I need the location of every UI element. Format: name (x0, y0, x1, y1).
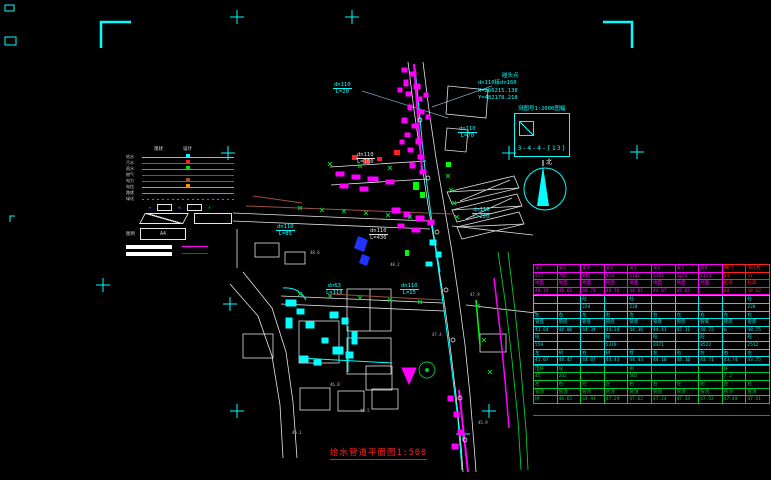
table-cell: 右 (652, 380, 676, 388)
table-cell (628, 341, 652, 349)
legend: 现状 设计 给水污水雨水燃气电力电信路缘绿化 ◄ ◆ ✕ 图例 A4 (126, 146, 244, 256)
table-cell: 43.75 (746, 356, 770, 364)
pipe-label: dn63L=118 (326, 283, 343, 297)
table-cell: 48.72 (699, 326, 723, 334)
pipe-label: dn110L=430 (369, 228, 388, 242)
table-cell: 左 (534, 380, 558, 388)
table-cell: 砼 (676, 380, 700, 388)
table-cell: 1252 (676, 272, 700, 280)
table-cell: 右 (746, 311, 770, 319)
table-cell: 47.62 (628, 395, 652, 403)
table-cell: 3371 (652, 341, 676, 349)
pipe-label: dn110L=85 (276, 224, 295, 238)
table-cell: 1193 (652, 272, 676, 280)
table-cell: 44.07 (581, 356, 605, 364)
table-cell: 47.51 (746, 395, 770, 403)
table-cell: 47.24 (652, 395, 676, 403)
table-section-head: 支1支2支3支4支5支6支7支8阀门消火栓9777658429191107119… (533, 264, 770, 295)
pipe-label: dn110L=70 (458, 126, 477, 140)
pipe-label: dn110L=15 (400, 283, 419, 297)
annotation-y: Y=482178.218 (478, 95, 519, 102)
table-cell: 电杆 (534, 365, 558, 373)
table-cell: 1107 (628, 272, 652, 280)
table-cell: 地面 (652, 279, 676, 287)
north-label: 北 (546, 158, 552, 166)
legend-footer-box: A4 (140, 228, 186, 240)
table-cell: 2512 (746, 341, 770, 349)
edge-mark-1 (5, 5, 14, 11)
legend-marker-icon (186, 178, 190, 182)
table-cell: 68 (723, 287, 747, 295)
table-cell (746, 365, 770, 373)
table-cell: 48.74 (534, 287, 558, 295)
table-cell: 44.94 (581, 395, 605, 403)
legend-marker-icon (186, 160, 190, 164)
table-cell: 224 (581, 303, 605, 311)
table-cell: 51 (746, 272, 770, 280)
mapsheet-number: 3-4-4-[13] (515, 144, 569, 152)
table-cell: 765 (558, 272, 582, 280)
mapsheet-caption: 测图号1:2000图幅 (518, 104, 570, 112)
utility-lines-brown (246, 196, 452, 300)
table-cell: 48.65 (558, 395, 582, 403)
table-cell: 220 (746, 303, 770, 311)
pipe-size-label: dn110 (333, 82, 352, 89)
table-cell: 砼 (699, 333, 723, 341)
table-cell: 砼 (558, 365, 582, 373)
table-cell: 左 (581, 311, 605, 319)
pipe-label: dn110L=20 (333, 82, 352, 96)
mapsheet-box: 3-4-4-[13] (514, 113, 570, 157)
table-cell: 48.63 (558, 287, 582, 295)
spot-elevation: 45.9 (478, 420, 488, 425)
legend-row-label: 绿化 (126, 196, 142, 202)
table-cell: 47.52 (699, 395, 723, 403)
pipe-length-label: L=15 (400, 290, 419, 296)
pipe-length-label: L=220 (472, 214, 491, 220)
table-cell (723, 295, 747, 303)
table-cell: 地面 (558, 279, 582, 287)
edge-mark-2 (5, 37, 16, 45)
table-cell: 8522 (699, 341, 723, 349)
table-cell: 44.34 (605, 326, 629, 334)
spot-elevation: 48.2 (390, 262, 400, 267)
pipe-size-label: dn110 (400, 283, 419, 290)
corner-bracket-tl (101, 22, 131, 48)
table-cell: 地面 (581, 279, 605, 287)
table-cell: 919 (605, 272, 629, 280)
cross-icon: ✕ (208, 205, 211, 211)
pipe-length-label: L=430 (369, 235, 388, 241)
table-cell: 左 (723, 380, 747, 388)
table-cell (581, 372, 605, 380)
table-cell: 砼 (652, 333, 676, 341)
table-bottom-rule (533, 415, 770, 416)
table-cell (676, 333, 700, 341)
magenta-triangle (402, 368, 416, 384)
table-cell: 管底 (605, 318, 629, 326)
north-arrow: 北 (524, 158, 566, 210)
table-cell (581, 333, 605, 341)
pipe-length-label: L=70 (458, 133, 477, 139)
table-cell: 管顶 (605, 388, 629, 396)
table-cell: 管顶 (746, 388, 770, 396)
table-cell: 44.34 (581, 326, 605, 334)
table-cell (699, 372, 723, 380)
table-cell: 管底 (652, 318, 676, 326)
table-cell: 地面 (699, 279, 723, 287)
table-cell: 44.36 (628, 326, 652, 334)
table-cell (699, 303, 723, 311)
mapsheet: 测图号1:2000图幅 3-4-4-[13] (514, 104, 570, 157)
table-cell: m (723, 326, 747, 334)
table-cell: 管底 (699, 318, 723, 326)
table-cell: 地面 (605, 279, 629, 287)
table-cell (676, 372, 700, 380)
spot-elevation: 46.1 (292, 430, 302, 435)
legend-line-sample (142, 199, 234, 200)
table-cell: 左 (746, 349, 770, 357)
table-cell: 砼 (581, 380, 605, 388)
magenta-line-sample (182, 246, 208, 247)
table-cell: 管顶 (652, 388, 676, 396)
table-cell (699, 365, 723, 373)
table-cell: 桩号 (723, 279, 747, 287)
table-cell: 41.64 (534, 326, 558, 334)
table-cell: 支3 (581, 264, 605, 272)
table-cell (628, 333, 652, 341)
table-cell: 48.62 (746, 287, 770, 295)
pipe-size-label: dn110 (369, 228, 388, 235)
legend-symbols-row: ◄ ◆ ✕ (148, 204, 244, 211)
pipe-length-label: L=20 (333, 89, 352, 95)
blue-blocks (354, 236, 370, 266)
table-cell: 左 (699, 349, 723, 357)
table-cell (652, 295, 676, 303)
table-cell: 支7 (676, 264, 700, 272)
pipe-size-label: dn110 (472, 207, 491, 214)
table-cell: 43.74 (723, 356, 747, 364)
table-cell: 地面 (628, 279, 652, 287)
pipe-length-label: L=85 (276, 231, 295, 237)
table-cell: 44.87 (652, 287, 676, 295)
table-cell (723, 333, 747, 341)
table-cell: 左 (676, 311, 700, 319)
table-cell: 左 (628, 311, 652, 319)
table-cell: 消火栓 (746, 264, 770, 272)
table-cell: 左 (605, 380, 629, 388)
table-cell: 管顶 (558, 388, 582, 396)
arrow-icon: ◄ (148, 205, 151, 211)
table-cell (581, 341, 605, 349)
table-cell: 管顶 (676, 388, 700, 396)
legend-line-sample (142, 193, 234, 194)
legend-header-existing: 现状 (154, 146, 163, 152)
table-cell: 502 (628, 372, 652, 380)
legend-footer: 图例 A4 (126, 228, 244, 240)
table-cell: 砼 (605, 333, 629, 341)
table-cell: 41.07 (534, 356, 558, 364)
legend-row: 绿化 (126, 196, 244, 202)
table-cell: 842 (581, 272, 605, 280)
table-cell: 228 (628, 303, 652, 311)
table-cell: 树 (558, 349, 582, 357)
table-cell: 44.41 (652, 326, 676, 334)
table-cell (558, 303, 582, 311)
table-cell: 砼 (628, 295, 652, 303)
table-cell (676, 341, 700, 349)
table-cell: 地面 (534, 279, 558, 287)
table-cell: 管顶 (581, 388, 605, 396)
table-cell: 管顶 (628, 388, 652, 396)
pipe-length-label: L=118 (326, 290, 343, 296)
table-cell: 管底 (676, 318, 700, 326)
table-cell: 右 (746, 380, 770, 388)
table-cell (652, 365, 676, 373)
scale-bar (126, 245, 172, 249)
table-section-foot: 电杆砼树杆452025027.2左右砼左右右砼树左右管顶管顶管顶管顶管顶管顶管顶… (533, 365, 770, 404)
drawing-title: 给水管道平面图1:500 (330, 446, 427, 460)
table-cell: 砼 (581, 295, 605, 303)
legend-header-design: 设计 (183, 146, 192, 152)
table-cell: 支1 (534, 264, 558, 272)
spot-elevation: 48.6 (310, 250, 320, 255)
table-cell: 48.75 (746, 326, 770, 334)
pipe-size-label: dn63 (326, 283, 343, 290)
legend-footer-label: 图例 (126, 231, 135, 237)
table-cell (581, 365, 605, 373)
table-cell: 47.34 (676, 395, 700, 403)
table-cell: 右 (628, 380, 652, 388)
table-cell: 支6 (652, 264, 676, 272)
table-cell: 管顶 (723, 388, 747, 396)
table-cell: 44.10 (676, 356, 700, 364)
table-cell: 右 (723, 349, 747, 357)
table-cell: 右 (652, 311, 676, 319)
table-cell: 树 (534, 395, 558, 403)
table-cell (676, 295, 700, 303)
table-cell: 1314 (699, 272, 723, 280)
table-cell: 管底 (723, 318, 747, 326)
table-cell: 48.81 (628, 287, 652, 295)
table-cell: 支2 (558, 264, 582, 272)
table-cell (746, 372, 770, 380)
table-cell: 阀门 (723, 264, 747, 272)
spot-elevation: 46.5 (360, 408, 370, 413)
table-cell: 管底 (558, 318, 582, 326)
table-cell (652, 303, 676, 311)
table-cell: 管底 (746, 318, 770, 326)
table-cell: 支4 (605, 264, 629, 272)
table-cell: 44.47 (558, 356, 582, 364)
table-cell: 559 (534, 341, 558, 349)
table-cell: 44.43 (605, 356, 629, 364)
spot-elevation: 47.9 (470, 292, 480, 297)
table-cell (605, 372, 629, 380)
table-cell (605, 365, 629, 373)
table-cell: 48.73 (581, 287, 605, 295)
table-cell: 杆 (723, 365, 747, 373)
annotation-x: X=266215.138 (478, 88, 519, 95)
pipe-length-label: L=160 (356, 159, 375, 165)
table-cell: 48.76 (605, 287, 629, 295)
table-cell (723, 341, 747, 349)
blue-line-sample (182, 253, 208, 254)
table-cell (605, 295, 629, 303)
table-cell: 管顶 (534, 388, 558, 396)
scale-bar (126, 252, 172, 256)
table-cell (558, 341, 582, 349)
table-cell: 43.71 (699, 356, 723, 364)
table-cell: 43.64 (676, 287, 700, 295)
table-cell: 右 (699, 311, 723, 319)
legend-marker-icon (186, 154, 190, 158)
legend-rows: 给水污水雨水燃气电力电信路缘绿化 (126, 154, 244, 202)
legend-shape-row (142, 213, 244, 224)
table-cell (534, 303, 558, 311)
table-cell: 树 (699, 380, 723, 388)
table-cell: 右 (558, 311, 582, 319)
table-cell: 砼 (746, 295, 770, 303)
table-cell: 202 (558, 372, 582, 380)
table-cell (558, 295, 582, 303)
table-cell: 5319 (605, 341, 629, 349)
table-cell: 47.11 (676, 326, 700, 334)
edge-mark-3 (10, 216, 15, 222)
table-cell: 右 (581, 349, 605, 357)
table-cell: 45 (534, 372, 558, 380)
table-cell: 47.49 (723, 395, 747, 403)
table-cell: 44.06 (558, 326, 582, 334)
box-icon (157, 204, 172, 211)
table-cell: 管顶 (699, 388, 723, 396)
table-cell: 44.43 (628, 356, 652, 364)
table-cell: 左 (534, 311, 558, 319)
spot-elevation: 47.4 (432, 332, 442, 337)
table-cell (558, 333, 582, 341)
pipe-label: dn110L=160 (356, 152, 375, 166)
table-cell: 右 (605, 311, 629, 319)
table-cell: 砼 (534, 333, 558, 341)
table-cell: 树 (628, 365, 652, 373)
table-cell: 左 (534, 349, 558, 357)
legend-header: 现状 设计 (154, 146, 244, 152)
table-cell: 支5 (628, 264, 652, 272)
table-cell (605, 303, 629, 311)
pipe-label: dn110L=220 (472, 207, 491, 221)
table-cell: 7.2 (723, 372, 747, 380)
pipe-size-label: dn110 (458, 126, 477, 133)
table-cell (676, 303, 700, 311)
table-cell: 砼 (746, 333, 770, 341)
table-cell: 84 (723, 272, 747, 280)
table-cell (723, 303, 747, 311)
pipe-size-label: dn110 (356, 152, 375, 159)
table-cell: 左 (652, 349, 676, 357)
table-cell (676, 365, 700, 373)
pipe-size-label: dn110 (276, 224, 295, 231)
table-cell (699, 295, 723, 303)
hatch-square-icon (519, 121, 534, 136)
legend-marker-icon (186, 166, 190, 170)
table-cell: 管底 (534, 318, 558, 326)
table-cell: 管底 (628, 318, 652, 326)
legend-marker-icon (186, 184, 190, 188)
rectangle-icon (194, 213, 232, 224)
table-cell: 树 (605, 349, 629, 357)
table-cell: 右 (676, 349, 700, 357)
table-cell: 右 (558, 380, 582, 388)
spot-elevation: 46.8 (330, 382, 340, 387)
diamond-icon: ◆ (178, 205, 181, 211)
box-icon (187, 204, 202, 211)
table-cell: 地面 (676, 279, 700, 287)
corner-bracket-tr (603, 22, 632, 48)
table-section-mid: 砼砼砼224228220左右左右左右左右左右管底管底管底管底管底管底管底管底管底… (533, 295, 770, 364)
table-cell: 支8 (699, 264, 723, 272)
table-cell (652, 372, 676, 380)
data-table: 支1支2支3支4支5支6支7支8阀门消火栓9777658429191107119… (533, 264, 770, 404)
table-cell: 977 (534, 272, 558, 280)
table-cell: 标高 (746, 279, 770, 287)
annotation-block: 碰头点 dn110接dn160 X=266215.138 Y=482178.21… (478, 73, 519, 103)
parallelogram-icon (139, 213, 189, 224)
cad-canvas: 北 碰头点 dn110接dn160 X=266215.138 Y=482178.… (0, 0, 771, 480)
table-cell: 44.10 (652, 356, 676, 364)
table-cell: 47.29 (605, 395, 629, 403)
table-cell: 左 (723, 311, 747, 319)
legend-bars (126, 245, 244, 256)
table-cell: 栓 (628, 349, 652, 357)
legend-line-sample (142, 175, 234, 176)
table-cell: 管底 (581, 318, 605, 326)
table-cell (699, 287, 723, 295)
annotation-pipe: dn110接dn160 (478, 80, 519, 87)
table-cell (534, 295, 558, 303)
